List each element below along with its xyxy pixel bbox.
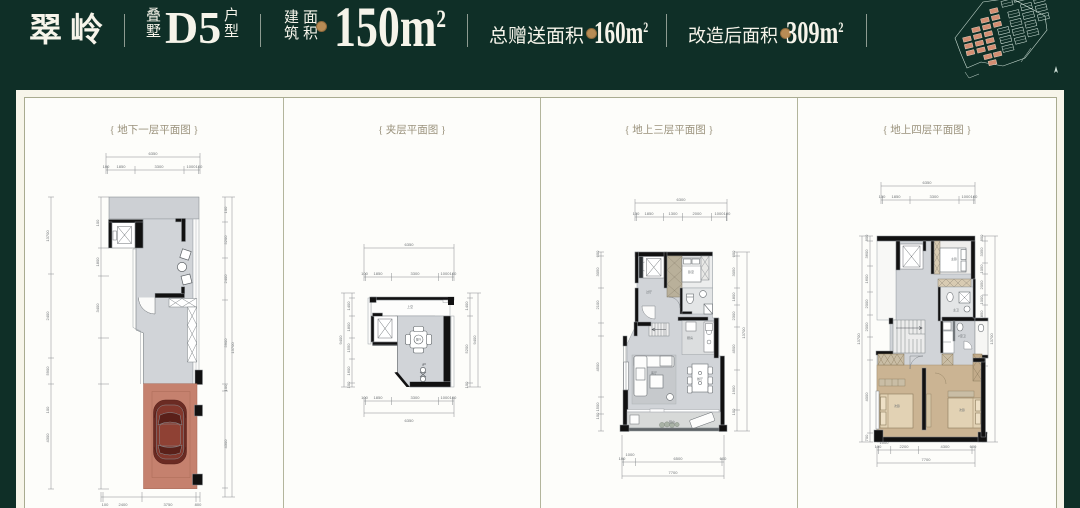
svg-text:100: 100 [595,412,600,419]
svg-text:客厅: 客厅 [651,370,657,375]
svg-text:上空: 上空 [407,304,413,309]
svg-text:2室卫: 2室卫 [958,333,966,338]
svg-text:3350: 3350 [979,247,984,257]
svg-text:100: 100 [102,502,109,507]
svg-text:13700: 13700 [741,327,746,339]
svg-text:100: 100 [196,164,203,169]
svg-text:100: 100 [971,194,978,199]
svg-text:餐厅: 餐厅 [416,338,422,342]
svg-text:6350: 6350 [405,242,415,247]
svg-text:100: 100 [731,408,736,415]
svg-text:13700: 13700 [230,342,235,354]
svg-text:2400: 2400 [223,274,228,284]
svg-text:100: 100 [45,406,50,413]
svg-text:1550: 1550 [346,343,351,353]
svg-text:主卧: 主卧 [951,256,957,261]
svg-text:100: 100 [361,395,368,400]
svg-text:800: 800 [195,502,202,507]
svg-text:阳台: 阳台 [669,419,675,424]
svg-text:13700: 13700 [989,333,994,345]
svg-text:1600: 1600 [346,366,351,376]
svg-text:1300: 1300 [669,211,679,216]
svg-text:3750: 3750 [164,502,174,507]
svg-text:2000: 2000 [693,211,703,216]
svg-text:2050: 2050 [979,280,984,290]
svg-text:600: 600 [595,250,600,257]
svg-text:6350: 6350 [923,180,933,185]
svg-text:2400: 2400 [45,311,50,321]
svg-text:5900: 5900 [45,366,50,376]
svg-text:3300: 3300 [411,271,421,276]
svg-text:100: 100 [223,384,228,391]
svg-text:次卧: 次卧 [894,403,900,408]
svg-text:4000: 4000 [864,392,869,402]
svg-text:100: 100 [103,164,110,169]
svg-text:100: 100 [724,211,731,216]
svg-text:2000: 2000 [864,322,869,332]
svg-text:3300: 3300 [155,164,165,169]
svg-text:过厅: 过厅 [646,289,652,294]
svg-text:100: 100 [450,271,457,276]
svg-text:13700: 13700 [856,333,861,345]
svg-text:100: 100 [464,381,469,388]
svg-text:100: 100 [450,395,457,400]
svg-text:卧室: 卧室 [688,269,694,274]
svg-text:3300: 3300 [411,395,421,400]
svg-text:100: 100 [346,381,351,388]
svg-text:1800: 1800 [346,322,351,332]
svg-text:4500: 4500 [595,362,600,372]
svg-text:5200: 5200 [223,235,228,245]
svg-text:1800: 1800 [731,292,736,302]
svg-text:1050: 1050 [979,264,984,274]
svg-text:1800: 1800 [95,257,100,267]
svg-text:1850: 1850 [117,164,127,169]
svg-text:4300: 4300 [941,444,951,449]
svg-text:100: 100 [879,194,886,199]
svg-text:100: 100 [223,206,228,213]
svg-text:100: 100 [361,271,368,276]
svg-text:1000: 1000 [979,295,984,305]
svg-text:9400: 9400 [338,335,343,345]
svg-text:6350: 6350 [149,151,159,156]
svg-text:800: 800 [864,234,869,241]
svg-text:3300: 3300 [930,194,940,199]
svg-text:4300: 4300 [45,433,50,443]
svg-text:2100: 2100 [595,300,600,310]
svg-text:9400: 9400 [472,335,477,345]
svg-text:3050: 3050 [731,267,736,277]
svg-text:厨房: 厨房 [687,335,693,340]
svg-text:600: 600 [720,456,727,461]
svg-text:餐厅: 餐厅 [697,376,703,381]
svg-text:5200: 5200 [464,344,469,354]
svg-text:1850: 1850 [374,271,384,276]
svg-text:6500: 6500 [674,456,684,461]
svg-text:1850: 1850 [645,211,655,216]
svg-text:次卧: 次卧 [959,407,965,412]
svg-text:1900: 1900 [731,385,736,395]
svg-text:13700: 13700 [45,230,50,242]
svg-text:主卫: 主卫 [953,307,959,312]
svg-text:4300: 4300 [223,439,228,449]
svg-text:3400: 3400 [95,303,100,313]
svg-text:3050: 3050 [595,267,600,277]
svg-text:5900: 5900 [223,338,228,348]
svg-text:7700: 7700 [669,470,679,475]
svg-text:100: 100 [95,219,100,226]
svg-text:1600: 1600 [864,274,869,284]
svg-text:7700: 7700 [922,457,932,462]
svg-text:600: 600 [731,250,736,257]
svg-text:2300: 2300 [731,311,736,321]
svg-text:1400: 1400 [346,301,351,311]
svg-text:1000: 1000 [626,452,636,457]
svg-text:1850: 1850 [892,194,902,199]
svg-text:2200: 2200 [900,444,910,449]
svg-text:1500: 1500 [595,402,600,412]
svg-text:700: 700 [864,434,869,441]
svg-text:100: 100 [633,211,640,216]
svg-text:2400: 2400 [119,502,129,507]
svg-text:600: 600 [970,444,977,449]
svg-text:6300: 6300 [677,197,687,202]
svg-text:3600: 3600 [864,249,869,259]
svg-text:1400: 1400 [464,301,469,311]
svg-text:800: 800 [979,234,984,241]
svg-text:2000: 2000 [864,299,869,309]
svg-text:6350: 6350 [405,418,415,423]
svg-text:4500: 4500 [731,344,736,354]
svg-text:1850: 1850 [374,395,384,400]
